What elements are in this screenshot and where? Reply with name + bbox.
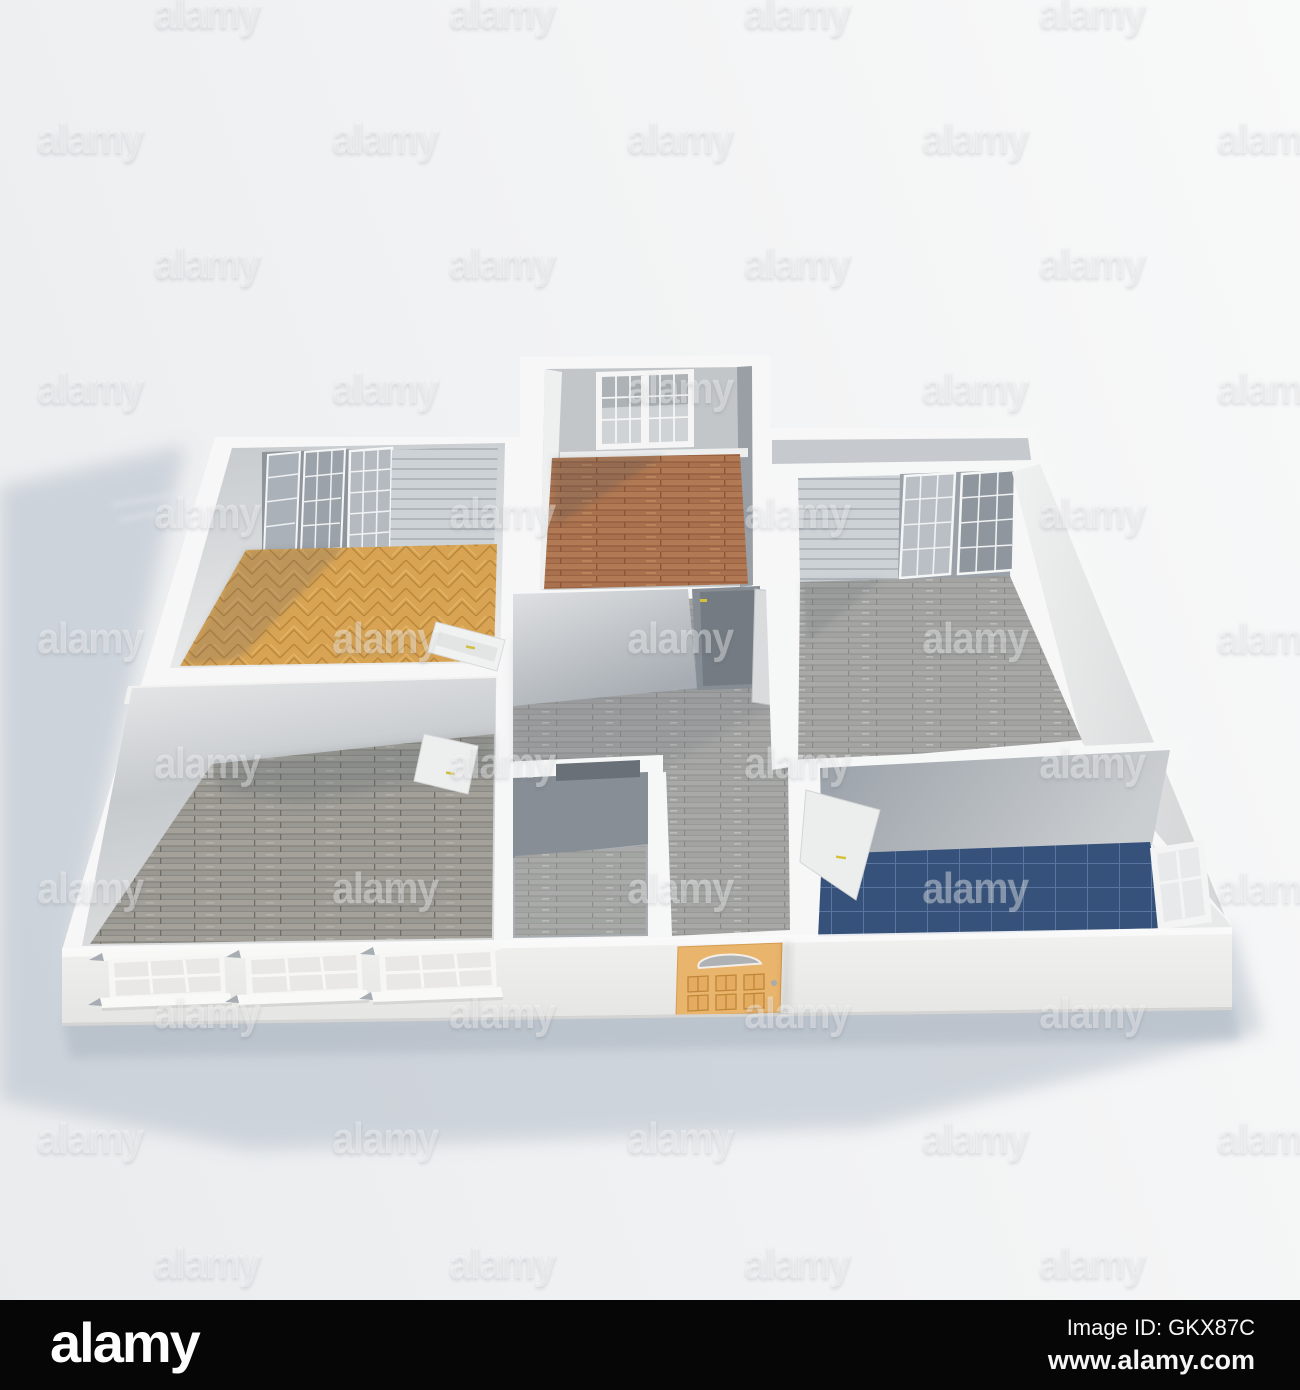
closet-floor bbox=[515, 846, 646, 936]
stock-photo-page: alamyalamyalamyalamyalamyalamyalamyalamy… bbox=[0, 0, 1300, 1390]
closet-wall-right bbox=[648, 755, 663, 939]
footer-bar: alamy Image ID: GKX87C www.alamy.com bbox=[0, 1300, 1300, 1390]
room-bedroom-top-middle bbox=[540, 366, 753, 590]
footer-info: Image ID: GKX87C www.alamy.com bbox=[1048, 1313, 1255, 1377]
floorplan-render bbox=[0, 0, 1300, 1390]
closet-shadow bbox=[513, 772, 648, 858]
bathroom-tile-floor bbox=[818, 842, 1168, 938]
image-id-text: Image ID: GKX87C bbox=[1048, 1313, 1255, 1343]
door-knob bbox=[771, 980, 777, 986]
room-bedroom-bottom-left bbox=[82, 676, 498, 946]
bedroom-wall-tall-face bbox=[513, 589, 697, 706]
alamy-logo: alamy bbox=[50, 1310, 199, 1375]
website-text: www.alamy.com bbox=[1048, 1343, 1255, 1377]
terrace-decking bbox=[390, 446, 498, 554]
glass-door-panel-left bbox=[900, 473, 955, 578]
closet-wall-left bbox=[500, 762, 513, 941]
front-window-3 bbox=[359, 942, 503, 1005]
folding-glass-door-panel-1 bbox=[264, 452, 300, 553]
closet-center bbox=[500, 755, 663, 941]
door-handle bbox=[700, 599, 707, 602]
front-window-1 bbox=[88, 948, 232, 1011]
front-window-2 bbox=[225, 945, 369, 1008]
bathroom-wall-faces bbox=[820, 750, 1170, 856]
glass-door-panel-3 bbox=[348, 448, 392, 556]
entrance-door bbox=[676, 943, 792, 1016]
